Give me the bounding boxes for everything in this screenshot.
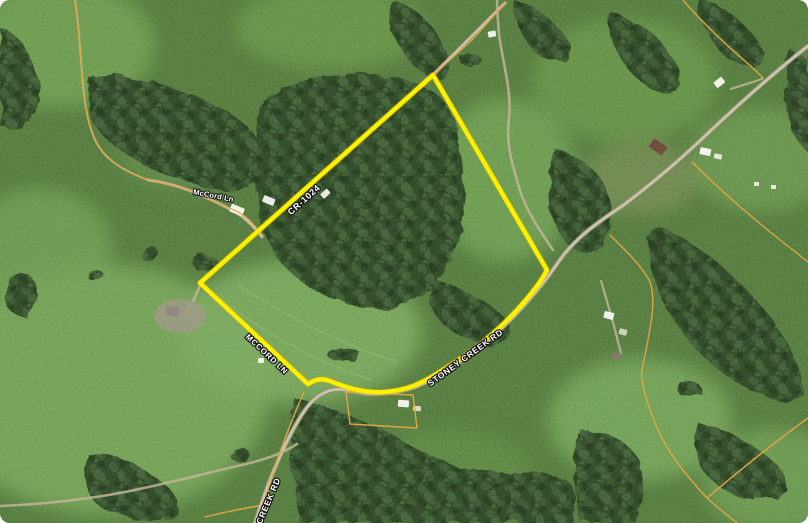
- aerial-parcel-map: McCord Ln CR-1024 MCCORD LN STONEY CREEK…: [0, 0, 808, 523]
- map-canvas: McCord Ln CR-1024 MCCORD LN STONEY CREEK…: [0, 0, 808, 523]
- image-grain-overlay: [0, 0, 808, 523]
